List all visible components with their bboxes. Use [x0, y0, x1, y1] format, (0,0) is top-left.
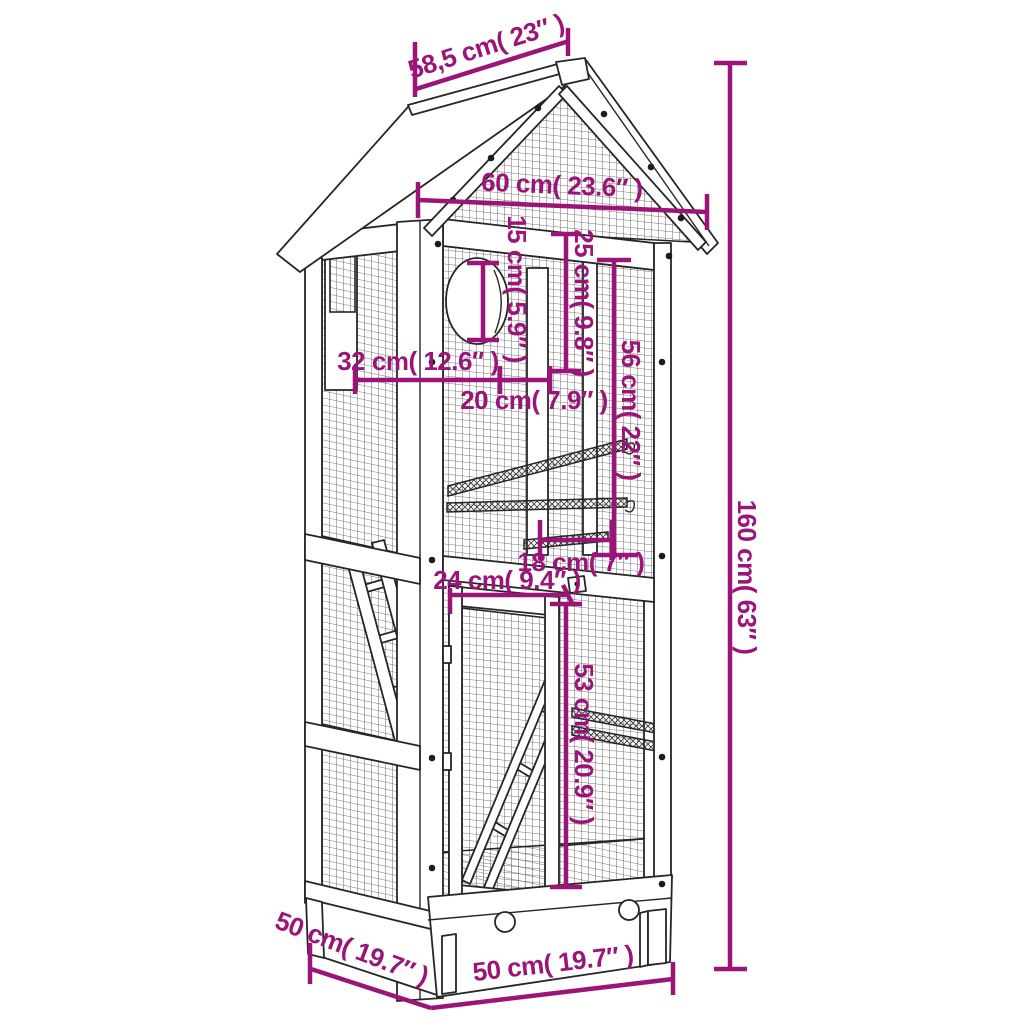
door-right-stile	[545, 596, 559, 912]
knob-icon	[495, 912, 515, 932]
door-hinge	[443, 646, 451, 663]
front-skirt	[428, 875, 672, 997]
dim-hole-diameter-label: 15 cm( 5.9″ )	[502, 215, 532, 363]
dim-hole-gap-label: 20 cm( 7.9″ )	[460, 385, 608, 415]
door-hinge	[443, 753, 451, 770]
dim-upper-height-label: 56 cm( 22″ )	[616, 340, 646, 481]
leg-right-side-face	[640, 911, 648, 967]
front-right-post	[654, 243, 671, 915]
entrance-hole-ring	[446, 258, 508, 344]
cage-drawing	[277, 58, 718, 1001]
dim-total-height: 160 cm( 63″ )	[714, 63, 762, 969]
knob-icon	[619, 900, 639, 920]
dim-total-height-label: 160 cm( 63″ )	[732, 500, 762, 655]
dim-door-height-label: 53 cm( 20.9″ )	[569, 663, 599, 825]
diagram-canvas: 58,5 cm( 23″ ) 60 cm( 23.6″ ) 15 cm( 5.9…	[0, 0, 1024, 1024]
dim-nest-height-label: 25 cm( 9.8″ )	[569, 229, 599, 377]
dim-hole-offset-label: 32 cm( 12.6″ )	[337, 346, 499, 376]
door-left-stile	[449, 586, 462, 904]
dim-door-width-label: 24 cm( 9.4″ )	[433, 565, 581, 595]
leg-right-front-face	[648, 909, 666, 965]
entrance-hole	[446, 258, 508, 344]
bird-cage-dimension-diagram: 58,5 cm( 23″ ) 60 cm( 23.6″ ) 15 cm( 5.9…	[0, 0, 1024, 1024]
leg-mid	[442, 934, 456, 994]
back-left-post	[305, 258, 322, 903]
roof-apex-cap	[556, 58, 589, 85]
